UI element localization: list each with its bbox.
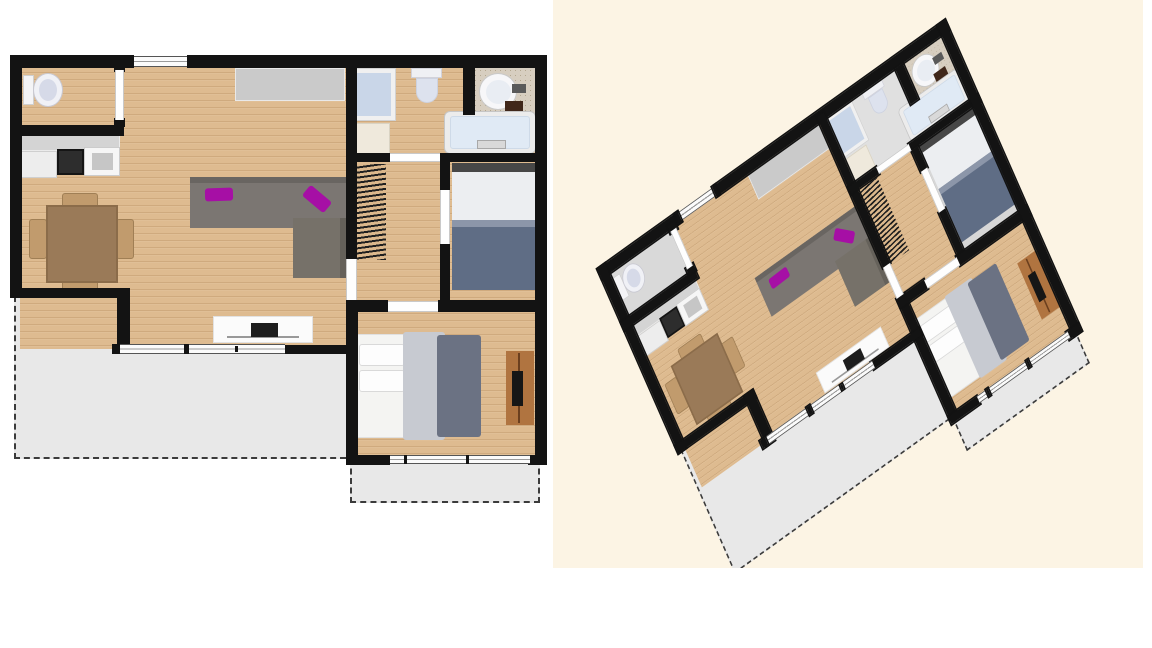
floorplan-app-canvas bbox=[0, 0, 1152, 648]
bed1-headboard bbox=[452, 163, 537, 172]
sofa-chaise bbox=[293, 218, 346, 278]
bed1-blanket-fold bbox=[452, 220, 537, 227]
vanity-faucet bbox=[512, 84, 526, 93]
kitchen-fridge bbox=[18, 151, 57, 178]
wall-mid-right bbox=[438, 300, 547, 312]
wall-right-outer bbox=[535, 55, 547, 465]
dining-chair-right bbox=[116, 219, 134, 259]
post-window-living-left bbox=[112, 344, 120, 354]
wall-living-bottom bbox=[283, 345, 357, 354]
closet-sideboard bbox=[235, 68, 345, 101]
door-bedroom-1 bbox=[440, 190, 450, 244]
window-living bbox=[118, 344, 285, 354]
dining-chair-left bbox=[29, 219, 47, 259]
window-bed2-tick-2 bbox=[466, 455, 469, 464]
window-bedroom2 bbox=[390, 455, 530, 464]
bed2-pillow-1 bbox=[359, 344, 405, 366]
bathroom-cabinet bbox=[352, 123, 390, 156]
toilet-bath-bowl bbox=[416, 78, 438, 103]
wall-bed1-left-bottom bbox=[440, 244, 450, 302]
wall-mid-left bbox=[346, 300, 388, 312]
kitchen-stove bbox=[57, 149, 84, 175]
toilet-wc-seat bbox=[39, 79, 57, 101]
door-bedroom-2 bbox=[388, 301, 438, 312]
wall-left bbox=[10, 55, 22, 298]
wall-bath-bottom-right bbox=[440, 153, 547, 162]
door-bathroom bbox=[390, 153, 440, 162]
wall-top-right bbox=[190, 55, 547, 68]
wall-bath-inner bbox=[463, 68, 475, 115]
door-wc bbox=[115, 70, 124, 120]
wall-bath-bottom-left bbox=[347, 153, 390, 162]
window-bed2-tick-1 bbox=[404, 455, 407, 464]
bathtub-faucet bbox=[477, 140, 506, 149]
post-window-top-left bbox=[129, 55, 134, 68]
dining-table bbox=[46, 205, 118, 283]
wall-living-right-low bbox=[346, 300, 358, 459]
stairs bbox=[354, 164, 386, 260]
3d-view-panel bbox=[553, 0, 1143, 568]
bed2-pillow-2 bbox=[359, 370, 405, 392]
bed1-mattress bbox=[452, 172, 537, 222]
kitchen-sink-basin bbox=[92, 153, 113, 170]
window-living-tick bbox=[235, 346, 238, 352]
window-living-divider bbox=[184, 344, 189, 354]
post-window-top-right bbox=[187, 55, 192, 68]
tv-screen bbox=[251, 323, 278, 337]
wall-bed2-bottom-left bbox=[346, 455, 390, 465]
wall-bed1-left-top bbox=[440, 162, 450, 190]
shower-tray bbox=[357, 73, 391, 116]
wall-step-h bbox=[10, 288, 130, 298]
desk-tv bbox=[512, 371, 523, 406]
toilet-bath-tank bbox=[411, 68, 442, 78]
sofa-cushion-1 bbox=[205, 188, 233, 202]
wall-bed2-bottom-right bbox=[528, 455, 547, 465]
terrace-bedroom bbox=[350, 459, 540, 503]
wall-wc-bottom bbox=[10, 125, 124, 136]
bed2-blanket bbox=[437, 335, 481, 437]
bed1-blanket bbox=[452, 220, 537, 290]
window-top bbox=[131, 56, 191, 67]
door-living-hall bbox=[346, 259, 357, 300]
